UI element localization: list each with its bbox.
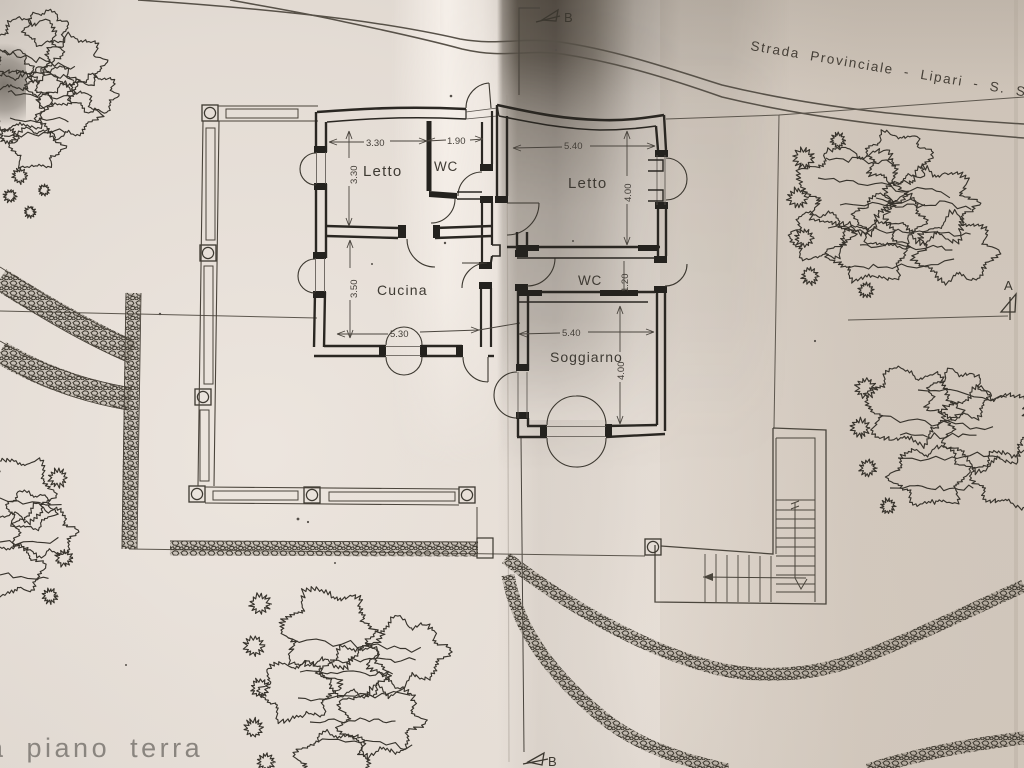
svg-text:3.30: 3.30	[366, 138, 385, 149]
svg-text:4.00: 4.00	[623, 184, 634, 203]
svg-text:Soggiarno: Soggiarno	[550, 349, 623, 365]
svg-text:1.90: 1.90	[447, 136, 466, 147]
svg-text:3.30: 3.30	[349, 166, 360, 185]
svg-text:4.00: 4.00	[616, 362, 627, 381]
svg-text:Letto: Letto	[363, 163, 402, 180]
svg-text:5.40: 5.40	[564, 141, 583, 152]
svg-text:Cucina: Cucina	[377, 282, 428, 298]
svg-text:5.40: 5.40	[562, 328, 581, 339]
svg-text:A: A	[1004, 278, 1013, 293]
svg-text:B: B	[548, 754, 557, 768]
svg-text:1.20: 1.20	[620, 274, 631, 293]
svg-text:B: B	[564, 10, 573, 25]
svg-text:3.50: 3.50	[349, 280, 360, 299]
svg-text:5.30: 5.30	[390, 329, 409, 340]
svg-text:WC: WC	[434, 159, 458, 174]
svg-text:Letto: Letto	[568, 175, 607, 192]
svg-text:a piano terra: a piano terra	[0, 733, 203, 763]
svg-text:WC: WC	[578, 273, 602, 288]
